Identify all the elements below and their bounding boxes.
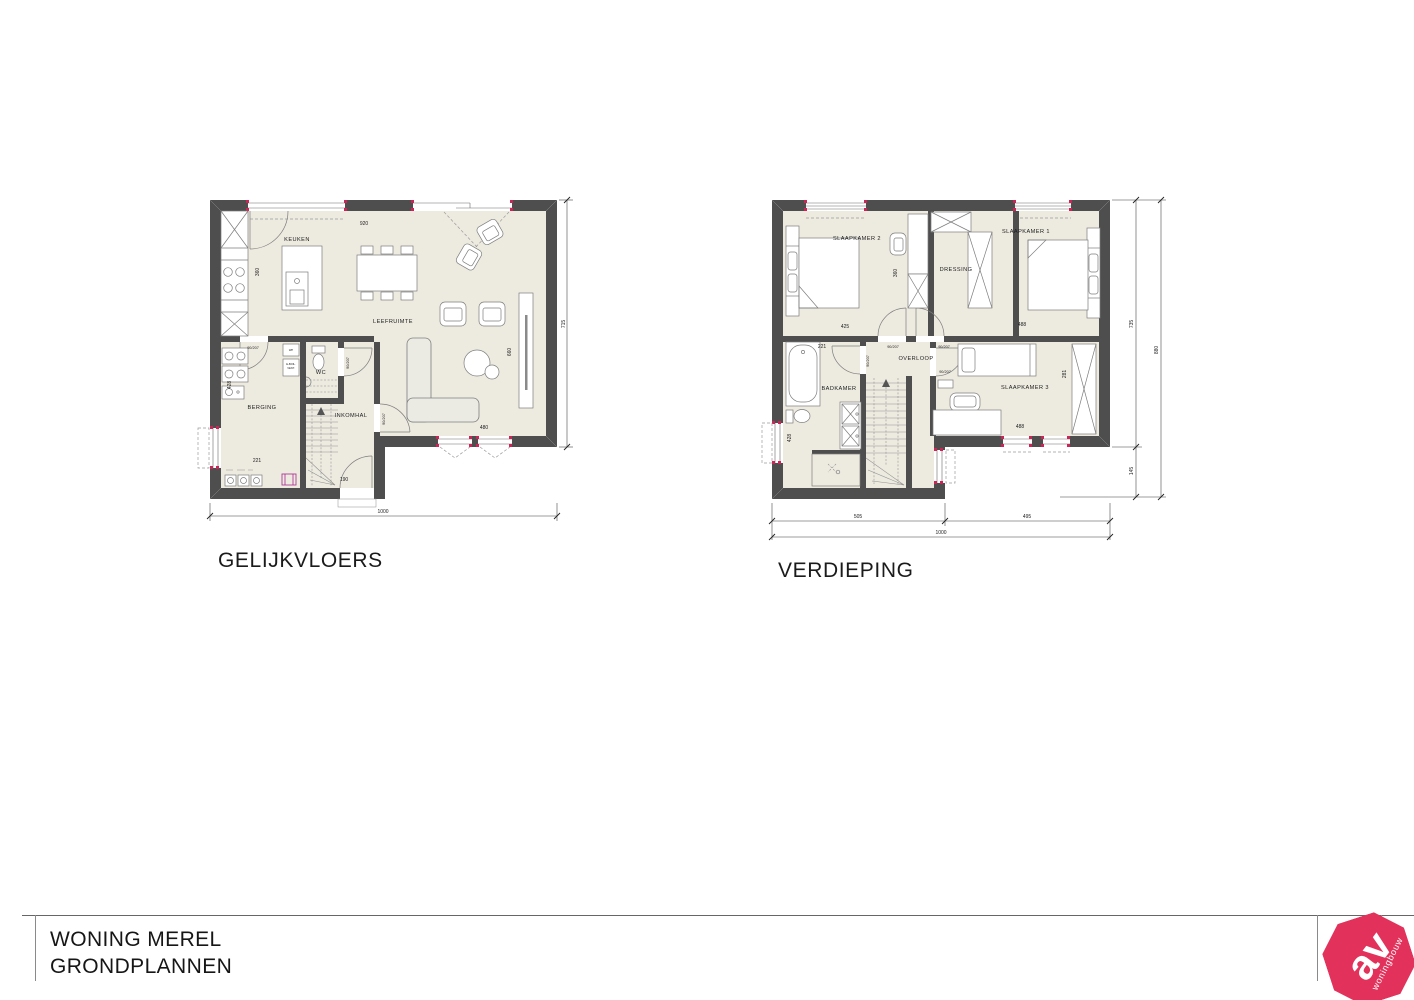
dim-880: 880 — [1154, 346, 1160, 355]
room-label-slaapkamer2: SLAAPKAMER 2 — [833, 236, 881, 242]
dim-495: 495 — [1023, 514, 1032, 520]
room-label-slaapkamer3: SLAAPKAMER 3 — [1001, 385, 1049, 391]
room-label-berging: BERGING — [248, 405, 277, 411]
dim-1000: 1000 — [377, 509, 388, 515]
dim-660: 660 — [507, 348, 513, 357]
dim-145: 145 — [1129, 467, 1135, 476]
wardrobe — [908, 214, 928, 274]
dining-table — [357, 255, 417, 291]
side-table — [485, 365, 499, 379]
bedroom-chair — [890, 233, 906, 255]
appliance-label-vent: VENT. — [287, 366, 295, 370]
dim-1000b: 1000 — [935, 530, 946, 536]
door-tag: 90/207 — [938, 345, 950, 349]
upper-floor-title: VERDIEPING — [778, 559, 914, 583]
door-tag: 90/207 — [866, 355, 870, 367]
dim-221: 221 — [253, 458, 262, 464]
desk — [933, 410, 1001, 435]
dim-488b: 488 — [1016, 424, 1025, 430]
room-label-overloop: OVERLOOP — [899, 356, 934, 362]
bed-headboard — [1087, 228, 1100, 318]
dim-488: 488 — [1018, 322, 1027, 328]
dim-505: 505 — [854, 514, 863, 520]
ground-floor-title: GELIJKVLOERS — [218, 549, 383, 573]
dim-920: 920 — [360, 221, 369, 227]
dim-428: 428 — [787, 434, 793, 443]
vf-slaapkamer1 — [1028, 228, 1100, 318]
project-name: WONING MEREL — [50, 926, 232, 953]
room-label-wc: WC — [316, 370, 326, 376]
dim-360: 360 — [255, 268, 261, 277]
single-bed — [958, 344, 1036, 376]
drawing-sheet: KEUKEN LEEFRUIMTE WC BERGING INKOMHAL WP… — [0, 0, 1414, 1000]
appliance-label-boiler: E-BOIL. — [286, 362, 296, 366]
ground-floor-plan: KEUKEN LEEFRUIMTE WC BERGING INKOMHAL WP… — [198, 197, 573, 521]
dim-221: 221 — [818, 344, 827, 350]
dim-281: 281 — [1062, 370, 1068, 379]
dim-480: 480 — [480, 425, 489, 431]
room-label-slaapkamer1: SLAAPKAMER 1 — [1002, 229, 1050, 235]
upper-floor-plan: SLAAPKAMER 2 SLAAPKAMER 1 DRESSING OVERL… — [762, 197, 1166, 540]
title-block-left-rule — [35, 915, 36, 981]
dim-425: 425 — [841, 324, 850, 330]
room-label-leefruimte: LEEFRUIMTE — [373, 319, 413, 325]
kitchen-island — [282, 246, 322, 310]
dim-735: 735 — [1129, 320, 1135, 329]
room-label-badkamer: BADKAMER — [822, 386, 857, 392]
logo-frame-left-rule — [1317, 915, 1318, 981]
floor-plans-canvas: KEUKEN LEEFRUIMTE WC BERGING INKOMHAL WP… — [0, 0, 1414, 1000]
dim-360: 360 — [893, 269, 899, 278]
door-tag: 90/207 — [887, 345, 899, 349]
vanity — [840, 402, 861, 449]
drawing-name: GRONDPLANNEN — [50, 953, 232, 980]
room-label-keuken: KEUKEN — [284, 237, 310, 243]
dim-190: 190 — [340, 477, 349, 483]
door-tag: 90/207 — [346, 357, 350, 369]
appliance-label-wp: WP — [289, 348, 294, 352]
dim-428: 428 — [227, 381, 233, 390]
door-tag: 90/207 — [382, 413, 386, 425]
door-tag: 90/207 — [247, 346, 259, 350]
title-block-divider — [22, 915, 1414, 916]
gf-dining-set — [357, 246, 417, 300]
room-label-dressing: DRESSING — [940, 267, 973, 273]
double-bed — [799, 238, 859, 308]
dim-715: 715 — [561, 320, 567, 329]
sofa — [407, 398, 479, 422]
double-bed — [1028, 240, 1088, 310]
room-label-inkomhal: INKOMHAL — [335, 413, 368, 419]
bed-headboard — [786, 226, 799, 316]
toilet — [313, 354, 324, 370]
title-block: WONING MEREL GRONDPLANNEN — [50, 926, 232, 980]
toilet — [794, 410, 810, 423]
door-tag: 90/207 — [939, 370, 951, 374]
